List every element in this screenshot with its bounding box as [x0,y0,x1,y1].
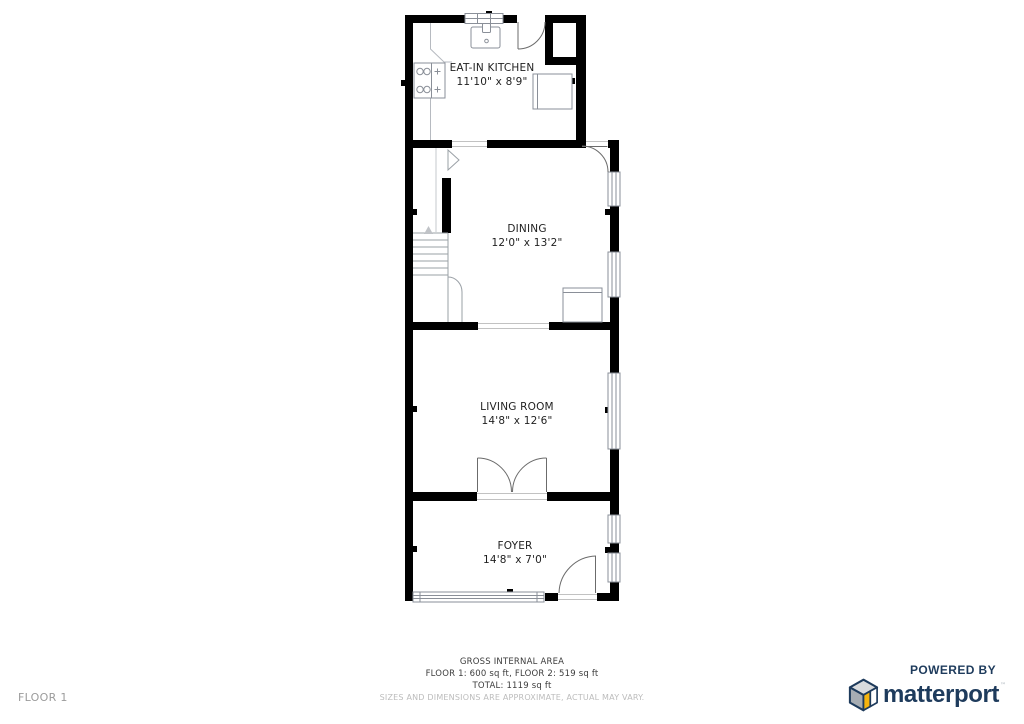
window-dining-1 [608,172,620,206]
matterport-cube-icon [848,678,879,712]
room-name: EAT-IN KITCHEN [407,61,577,75]
door-dining [582,146,608,172]
openings [452,142,608,600]
window-dining-2 [608,252,620,297]
double-door-threshold [477,492,547,501]
window-kitchen-top [465,14,503,24]
window-living [608,373,620,449]
trademark-mark: ™ [1000,682,1006,689]
room-dims: 14'8" x 12'6" [432,414,602,428]
up-arrow-icon [424,226,433,234]
window-foyer-2 [608,553,620,582]
room-name: FOYER [430,539,600,553]
room-label-dining: DINING 12'0" x 13'2" [442,222,612,250]
room-name: DINING [442,222,612,236]
room-dims: 14'8" x 7'0" [430,553,600,567]
dining-cabinet [563,288,602,322]
sink [471,24,500,49]
room-label-living: LIVING ROOM 14'8" x 12'6" [432,400,602,428]
floor-plan [0,0,1024,724]
matterport-branding: POWERED BY matterport ™ [848,663,1006,712]
window-foyer-1 [608,515,620,543]
door-bifold [448,150,459,170]
floor-label: FLOOR 1 [18,691,68,704]
window-foyer-bottom [413,592,544,602]
door-living-double [478,458,547,492]
door-kitchen [518,22,545,49]
room-label-foyer: FOYER 14'8" x 7'0" [430,539,600,567]
room-dims: 12'0" x 13'2" [442,236,612,250]
room-name: LIVING ROOM [432,400,602,414]
powered-by-label: POWERED BY [910,663,996,677]
matterport-logo: matterport ™ [848,678,1006,712]
page: { "plan": { "rooms": [ { "name": "EAT-IN… [0,0,1024,724]
room-dims: 11'10" x 8'9" [407,75,577,89]
matterport-wordmark: matterport [883,681,999,709]
room-label-kitchen: EAT-IN KITCHEN 11'10" x 8'9" [407,61,577,89]
